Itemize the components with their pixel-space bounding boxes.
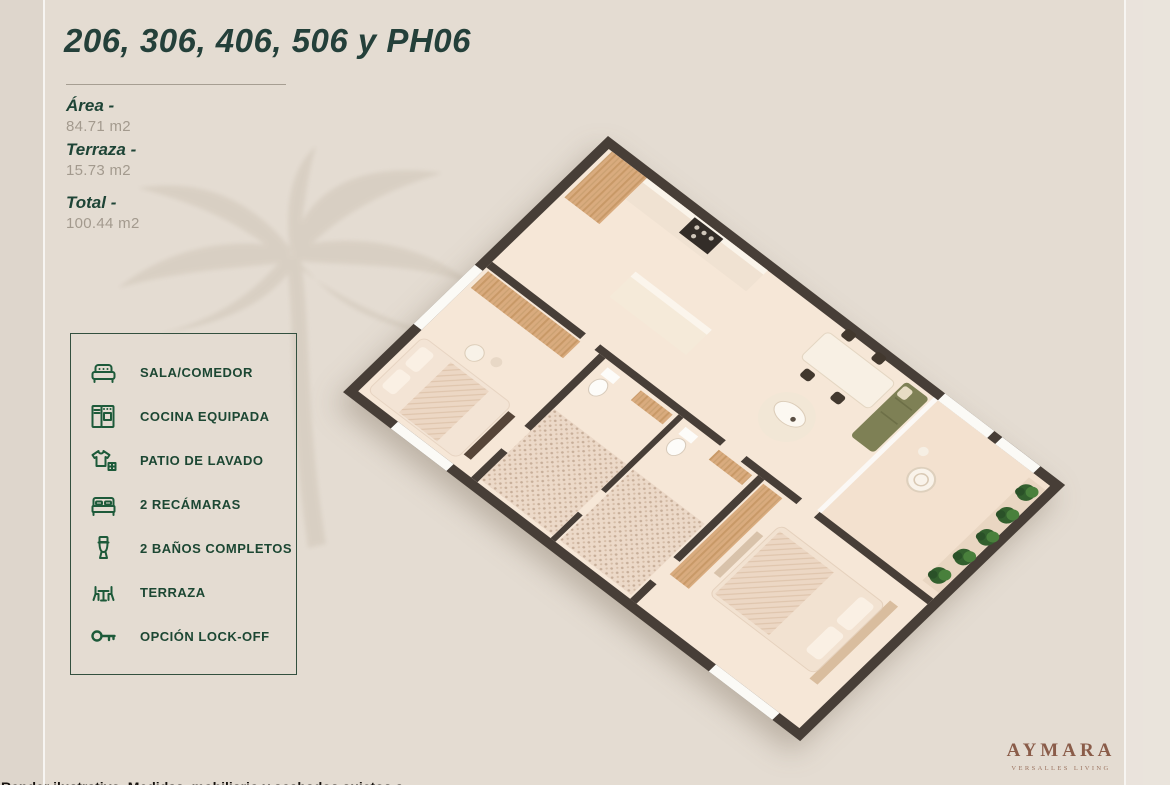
area-label: Área -	[66, 96, 114, 116]
total-label: Total -	[66, 193, 116, 213]
feature-terraza: TERRAZA	[71, 578, 296, 606]
feature-lockoff: OPCIÓN LOCK-OFF	[71, 622, 296, 650]
terraza-label: Terraza -	[66, 140, 136, 160]
feature-sala: SALA/COMEDOR	[71, 358, 296, 386]
feature-label: COCINA EQUIPADA	[140, 409, 270, 424]
brand-name: AYMARA	[1006, 740, 1116, 762]
key-icon	[88, 622, 119, 650]
page-left-strip	[0, 0, 43, 785]
feature-recamaras: 2 RECÁMARAS	[71, 490, 296, 518]
apartment-footprint	[343, 136, 1065, 741]
fold-line-left	[43, 0, 45, 785]
feature-patio: PATIO DE LAVADO	[71, 446, 296, 474]
feature-label: 2 BAÑOS COMPLETOS	[140, 541, 292, 556]
feature-label: OPCIÓN LOCK-OFF	[140, 629, 270, 644]
kitchen-icon	[88, 402, 119, 430]
bed-icon	[88, 490, 119, 518]
feature-cocina: COCINA EQUIPADA	[71, 402, 296, 430]
page-title: 206, 306, 406, 506 y PH06	[64, 22, 471, 60]
area-value: 84.71 m2	[66, 118, 131, 135]
feature-label: SALA/COMEDOR	[140, 365, 253, 380]
brochure-page: 206, 306, 406, 506 y PH06 Área - 84.71 m…	[0, 0, 1170, 785]
feature-label: PATIO DE LAVADO	[140, 453, 264, 468]
features-box: SALA/COMEDOR COCINA EQUIPADA PATIO DE LA…	[70, 333, 297, 675]
page-right-strip	[1126, 0, 1170, 785]
terrace-icon	[88, 578, 119, 606]
terraza-value: 15.73 m2	[66, 162, 131, 179]
feature-label: TERRAZA	[140, 585, 206, 600]
sofa-icon	[88, 358, 119, 386]
title-underline	[66, 84, 286, 85]
feature-label: 2 RECÁMARAS	[140, 497, 241, 512]
footer-clipped-text: Render ilustrativo. Medidas, mobiliario …	[1, 780, 421, 785]
total-value: 100.44 m2	[66, 215, 140, 232]
brand-tagline: VERSALLES LIVING	[1006, 765, 1116, 772]
brand-logo: AYMARA VERSALLES LIVING	[1006, 740, 1116, 772]
laundry-icon	[88, 446, 119, 474]
floor-plan-render	[290, 80, 1090, 775]
feature-banos: 2 BAÑOS COMPLETOS	[71, 534, 296, 562]
toilet-icon	[88, 534, 119, 562]
